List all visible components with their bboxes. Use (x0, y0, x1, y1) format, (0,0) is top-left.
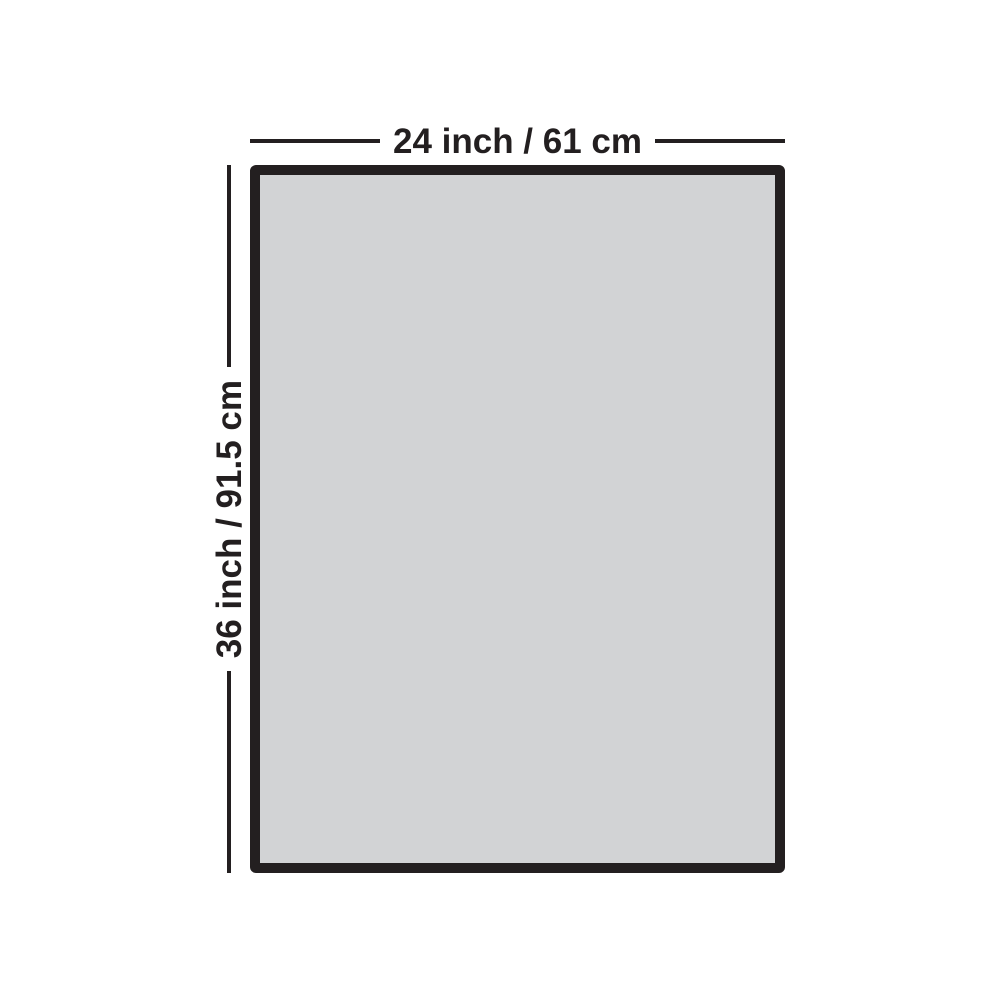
width-dimension-line-left (250, 139, 380, 143)
width-dimension-line-right (655, 139, 785, 143)
height-dimension: 36 inch / 91.5 cm (210, 165, 248, 873)
height-dimension-line-top (227, 165, 231, 367)
product-panel (250, 165, 785, 873)
width-dimension-label: 24 inch / 61 cm (380, 124, 655, 159)
dimension-diagram: 24 inch / 61 cm 36 inch / 91.5 cm (0, 0, 1000, 1000)
width-dimension: 24 inch / 61 cm (250, 122, 785, 160)
height-dimension-line-bottom (227, 671, 231, 873)
height-dimension-label: 36 inch / 91.5 cm (212, 367, 247, 671)
